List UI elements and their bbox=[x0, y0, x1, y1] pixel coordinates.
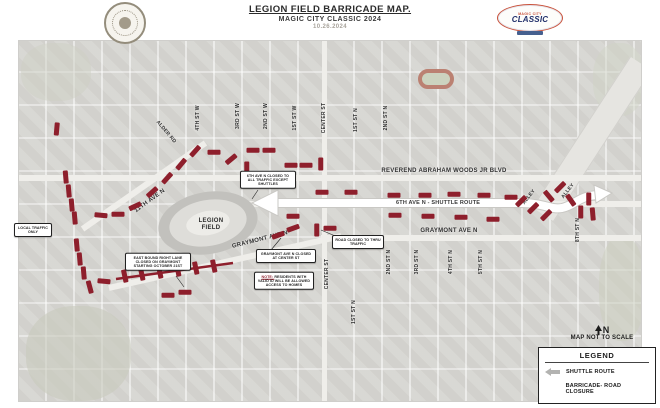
north-letter: N bbox=[603, 325, 610, 335]
legend-label-barricade: BARRICADE- ROAD CLOSURE bbox=[566, 383, 649, 395]
scale-note: MAP NOT TO SCALE bbox=[552, 335, 652, 341]
birmingham-city-seal-icon bbox=[104, 2, 146, 44]
trees-patch bbox=[26, 306, 131, 401]
trees-patch bbox=[21, 43, 91, 101]
north-indicator: N MAP NOT TO SCALE bbox=[552, 325, 652, 341]
road-center-st bbox=[322, 41, 327, 402]
legend-row-shuttle: SHUTTLE ROUTE bbox=[545, 368, 649, 376]
logo-pedestal bbox=[517, 31, 543, 35]
logo-line2: CLASSIC bbox=[512, 15, 549, 24]
legion-field-stadium bbox=[153, 184, 262, 262]
legend-title: LEGEND bbox=[545, 351, 649, 363]
legend-row-barricade: BARRICADE- ROAD CLOSURE bbox=[545, 383, 649, 395]
road-rev-abraham-woods bbox=[19, 175, 642, 181]
north-arrow-icon bbox=[595, 325, 602, 335]
stadium-field bbox=[184, 207, 231, 238]
magic-city-classic-logo: MAGIC CITY CLASSIC bbox=[497, 4, 563, 34]
barricade-swatch-icon bbox=[545, 386, 560, 392]
interstate-highway bbox=[532, 56, 642, 221]
road-6th-ave-n bbox=[241, 201, 642, 207]
seal-inner-ring bbox=[112, 10, 138, 36]
page: { "header": { "title": "LEGION FIELD BAR… bbox=[0, 0, 660, 408]
legend-box: LEGEND SHUTTLE ROUTE BARRICADE- ROAD CLO… bbox=[538, 347, 656, 404]
road-graymont-east bbox=[321, 235, 642, 241]
seal-emblem bbox=[119, 17, 131, 29]
shuttle-arrow-icon bbox=[545, 368, 560, 376]
football-logo-icon: MAGIC CITY CLASSIC bbox=[497, 4, 563, 32]
stadium-stands bbox=[166, 194, 251, 253]
running-track bbox=[418, 69, 454, 89]
legend-label-shuttle: SHUTTLE ROUTE bbox=[566, 369, 615, 375]
